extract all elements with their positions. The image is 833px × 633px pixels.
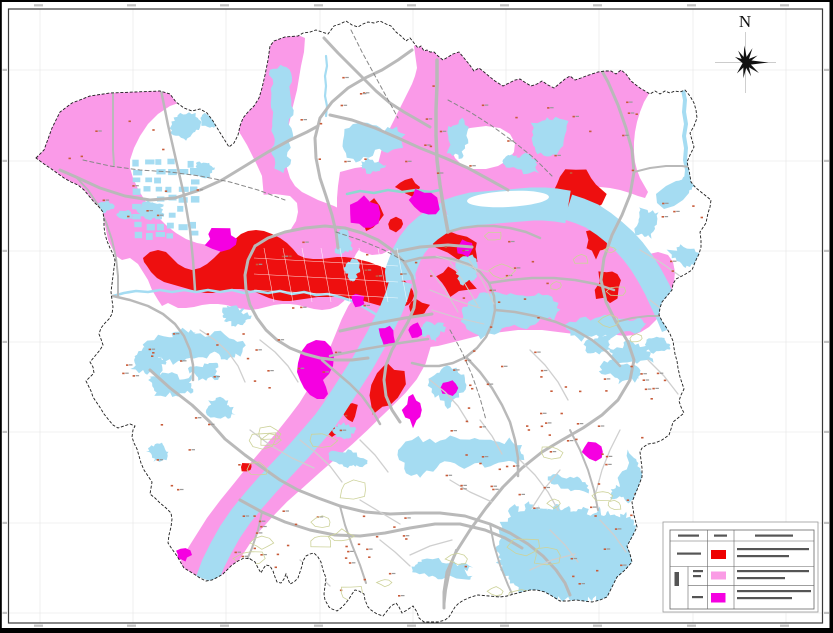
svg-text:N: N (739, 12, 751, 31)
